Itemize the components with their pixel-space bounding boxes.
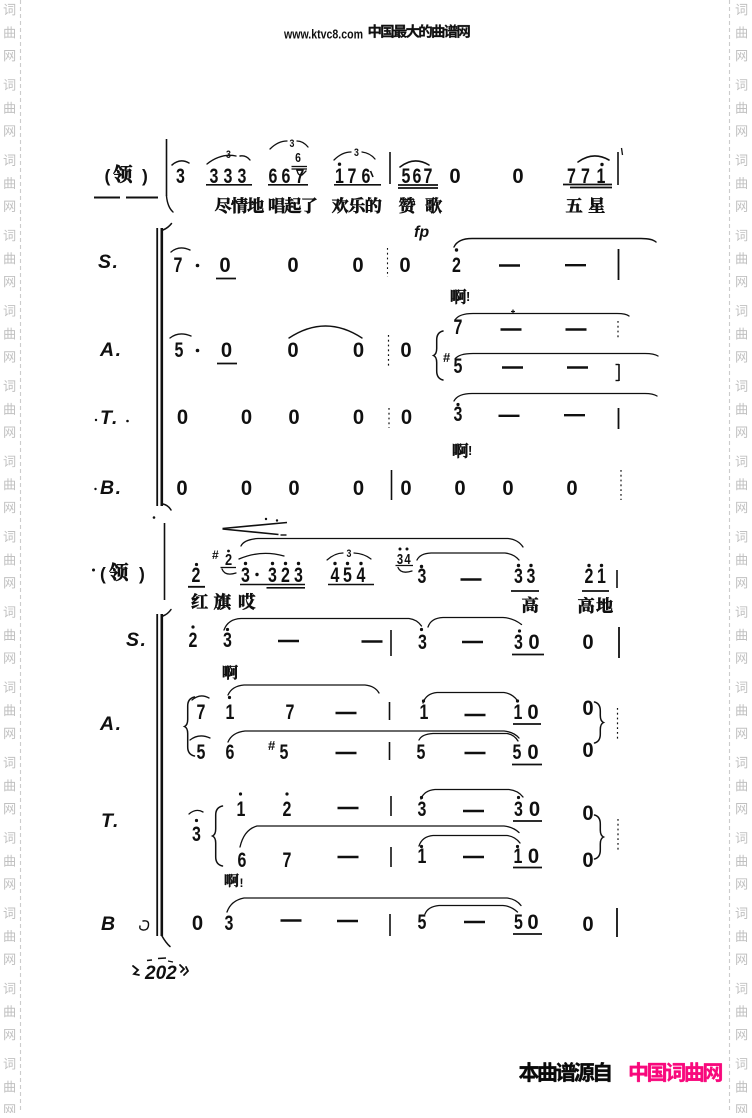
svg-text:7: 7 (283, 848, 292, 872)
svg-text:6: 6 (238, 848, 247, 872)
svg-text:7: 7 (174, 253, 183, 277)
svg-text:0: 0 (241, 477, 252, 501)
svg-text:): ) (139, 564, 145, 584)
svg-text:4: 4 (357, 563, 366, 587)
svg-text:6: 6 (295, 151, 301, 165)
svg-text:): ) (142, 166, 148, 186)
svg-text:T.: T. (101, 810, 120, 832)
svg-text:(: ( (105, 166, 111, 186)
svg-text:3: 3 (192, 822, 201, 846)
svg-text:5: 5 (513, 740, 522, 764)
svg-text:#: # (212, 548, 219, 562)
svg-text:0: 0 (528, 845, 539, 869)
svg-text:0: 0 (582, 913, 593, 937)
svg-text:S.: S. (126, 629, 147, 651)
svg-text:3: 3 (397, 550, 403, 567)
svg-text:0: 0 (219, 254, 230, 278)
svg-text:0: 0 (582, 849, 593, 873)
svg-text:1: 1 (420, 700, 429, 724)
svg-text:0: 0 (400, 477, 411, 501)
svg-text:0: 0 (527, 911, 538, 935)
svg-text:1: 1 (597, 564, 606, 588)
svg-text:2: 2 (281, 563, 290, 587)
svg-text:0: 0 (527, 741, 538, 765)
svg-text:0: 0 (288, 406, 299, 430)
svg-text:0: 0 (192, 912, 203, 936)
svg-text:3: 3 (418, 630, 427, 654)
svg-text:2: 2 (189, 628, 198, 652)
svg-text:5: 5 (280, 740, 289, 764)
svg-text:5: 5 (417, 740, 426, 764)
svg-text:T.: T. (100, 407, 119, 429)
svg-text:0: 0 (566, 477, 577, 501)
svg-text:3: 3 (225, 911, 234, 935)
svg-text:3: 3 (354, 147, 359, 159)
svg-text:202: 202 (144, 963, 177, 984)
svg-text:www.ktvc8.com: www.ktvc8.com (283, 27, 363, 42)
svg-text:0: 0 (582, 631, 593, 655)
svg-text:3: 3 (268, 563, 277, 587)
svg-text:2: 2 (192, 563, 201, 587)
svg-text:5: 5 (197, 740, 206, 764)
svg-text:S.: S. (98, 251, 119, 273)
svg-text:4: 4 (404, 550, 411, 567)
svg-text:3: 3 (290, 138, 295, 150)
svg-text:1: 1 (514, 700, 523, 724)
svg-text:0: 0 (527, 701, 538, 725)
svg-text:!: ! (466, 289, 470, 304)
svg-text:!: ! (240, 876, 244, 890)
svg-text:2: 2 (585, 564, 594, 588)
svg-text:A.: A. (99, 713, 123, 735)
svg-text:1: 1 (226, 700, 235, 724)
svg-text:5: 5 (454, 354, 463, 378)
svg-text:0: 0 (399, 254, 410, 278)
svg-text:5: 5 (514, 910, 523, 934)
svg-text:0: 0 (352, 254, 363, 278)
svg-text:5: 5 (175, 338, 184, 362)
svg-text:B: B (101, 913, 115, 935)
svg-text:1: 1 (237, 797, 246, 821)
svg-text:0: 0 (582, 697, 593, 721)
svg-text:6: 6 (413, 164, 422, 188)
svg-text:0: 0 (287, 254, 298, 278)
svg-text:0: 0 (221, 339, 232, 363)
svg-text:0: 0 (353, 477, 364, 501)
svg-text:7: 7 (197, 700, 206, 724)
svg-text:0: 0 (502, 477, 513, 501)
svg-text:0: 0 (241, 406, 252, 430)
svg-text:7: 7 (424, 164, 433, 188)
svg-text:(: ( (100, 564, 106, 584)
svg-text:3: 3 (241, 563, 250, 587)
svg-text:0: 0 (353, 339, 364, 363)
svg-text:0: 0 (400, 339, 411, 363)
svg-text:7: 7 (454, 315, 463, 339)
svg-text:#: # (443, 350, 451, 365)
svg-text:3: 3 (514, 797, 523, 821)
svg-text:0: 0 (287, 339, 298, 363)
svg-text:0: 0 (512, 165, 523, 189)
svg-text:6: 6 (226, 740, 235, 764)
svg-text:2: 2 (283, 797, 292, 821)
svg-text:3: 3 (294, 563, 303, 587)
svg-text:5: 5 (343, 563, 352, 587)
svg-text:4: 4 (331, 563, 340, 587)
svg-text:0: 0 (288, 477, 299, 501)
svg-text:3: 3 (176, 164, 185, 188)
svg-text:5: 5 (402, 164, 411, 188)
svg-text:fp: fp (414, 224, 429, 241)
svg-text:0: 0 (528, 631, 539, 655)
svg-text:3: 3 (223, 628, 232, 652)
svg-text:0: 0 (582, 739, 593, 763)
svg-text:0: 0 (582, 802, 593, 826)
svg-text:A.: A. (99, 339, 123, 361)
svg-text:0: 0 (529, 798, 540, 822)
svg-text:!: ! (468, 443, 472, 458)
svg-text:2: 2 (225, 552, 232, 570)
svg-text:B.: B. (100, 477, 123, 499)
svg-text:0: 0 (401, 406, 412, 430)
svg-text:#: # (268, 738, 276, 753)
svg-text:3: 3 (418, 797, 427, 821)
svg-text:3: 3 (527, 564, 536, 588)
svg-text:0: 0 (176, 477, 187, 501)
svg-text:0: 0 (449, 165, 460, 189)
svg-text:3: 3 (226, 149, 231, 161)
svg-text:0: 0 (353, 406, 364, 430)
svg-text:0: 0 (177, 406, 188, 430)
svg-text:0: 0 (454, 477, 465, 501)
svg-text:7: 7 (286, 700, 295, 724)
svg-text:3: 3 (347, 548, 352, 560)
svg-text:3: 3 (514, 564, 523, 588)
svg-text:3: 3 (514, 630, 523, 654)
svg-text:2: 2 (452, 253, 461, 277)
